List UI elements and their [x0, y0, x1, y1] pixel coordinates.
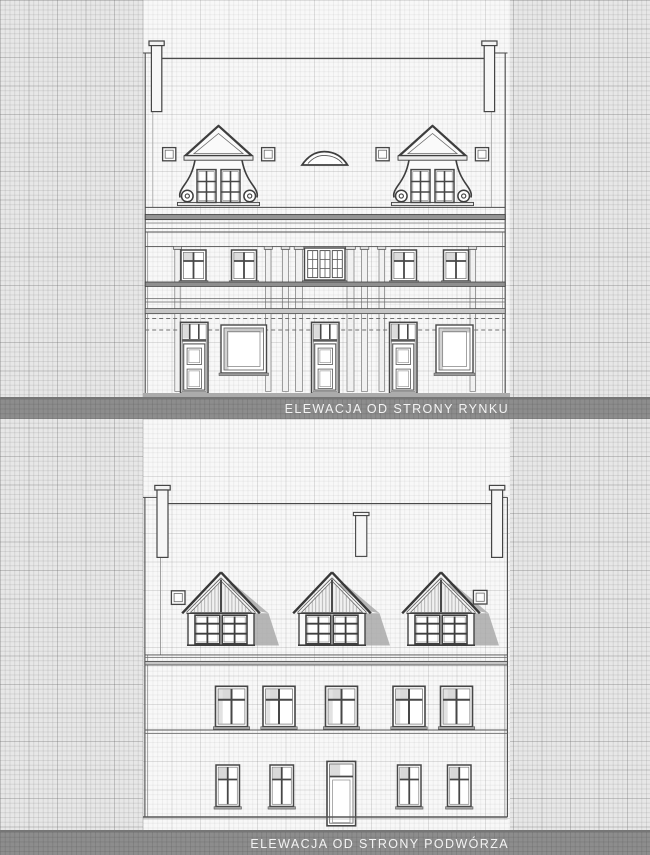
eyebrow-vent	[302, 152, 348, 165]
roof-vent	[376, 148, 389, 161]
roof-vent	[475, 148, 488, 161]
entrance-door	[181, 322, 209, 393]
entrance-door	[390, 322, 418, 393]
triple-window	[305, 248, 346, 280]
floor-band	[145, 730, 508, 734]
entrance-door	[312, 322, 340, 393]
caption-band-courtyard: ELEWACJA OD STRONY PODWÓRZA	[0, 830, 650, 855]
caption-band-market: ELEWACJA OD STRONY RYNKU	[0, 397, 650, 419]
roof-vent	[262, 148, 275, 161]
courtyard-door	[327, 761, 356, 825]
roof-vent	[171, 591, 185, 605]
upper-floor-windows	[179, 248, 471, 283]
window	[398, 765, 422, 807]
roof-vent	[163, 148, 176, 161]
chimney-left	[155, 485, 170, 557]
market-elevation-drawing	[143, 0, 510, 397]
eaves-cornice	[145, 655, 508, 665]
chimney-right	[482, 41, 497, 112]
chimney-right	[489, 485, 504, 557]
window	[448, 765, 472, 807]
caption-text-courtyard: ELEWACJA OD STRONY PODWÓRZA	[250, 837, 509, 851]
caption-text-market: ELEWACJA OD STRONY RYNKU	[285, 402, 509, 416]
main-cornice	[145, 207, 505, 246]
courtyard-elevation-drawing	[143, 419, 510, 830]
chimney-middle	[353, 512, 369, 556]
ground-floor	[143, 322, 510, 397]
window	[216, 765, 240, 807]
shop-window	[434, 325, 475, 376]
chimney-left	[149, 41, 164, 112]
roof-vent	[473, 590, 487, 604]
blueprint-canvas: ELEWACJA OD STRONY RYNKU ELEWACJA OD STR…	[0, 0, 650, 855]
window	[270, 765, 294, 807]
middle-floor-windows	[213, 686, 474, 729]
ground-floor	[143, 761, 508, 825]
shop-window	[219, 325, 269, 376]
